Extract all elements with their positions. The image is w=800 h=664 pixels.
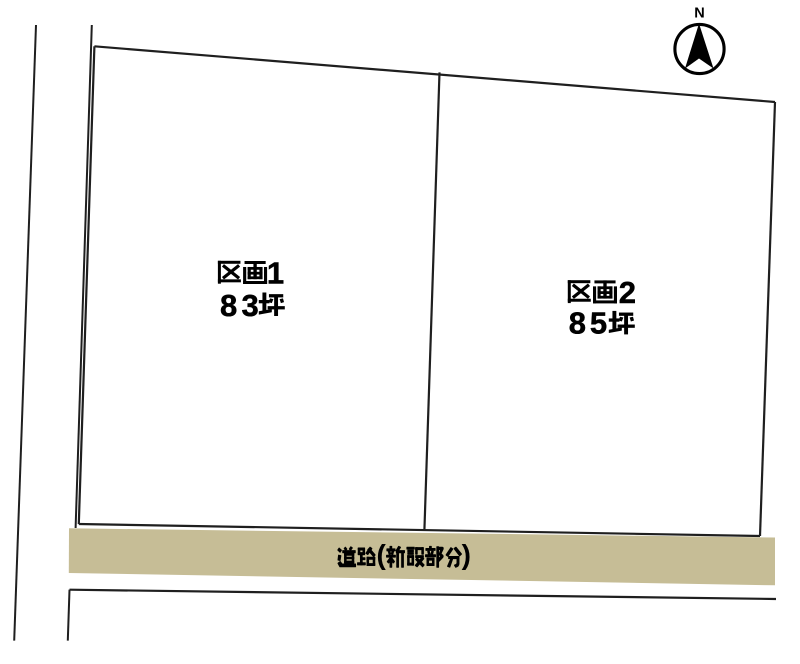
- svg-text:N: N: [694, 6, 704, 22]
- svg-text:8: 8: [569, 306, 586, 341]
- svg-text:(: (: [377, 539, 387, 570]
- svg-text:5: 5: [590, 306, 607, 341]
- svg-text:3: 3: [241, 288, 258, 323]
- svg-text:1: 1: [267, 256, 284, 291]
- svg-text:): ): [462, 539, 471, 570]
- svg-text:2: 2: [619, 275, 636, 310]
- svg-text:8: 8: [220, 288, 237, 323]
